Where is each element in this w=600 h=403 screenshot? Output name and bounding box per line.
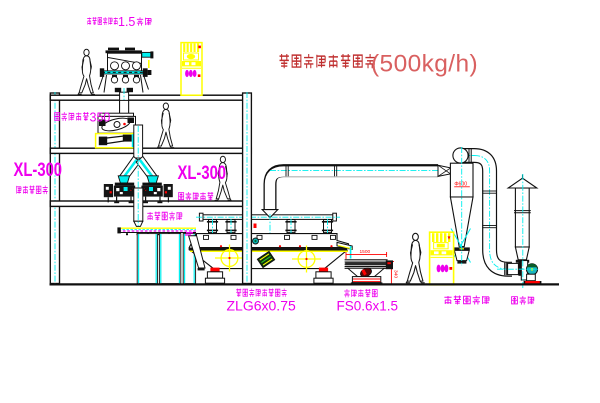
svg-text:FS0.6x1.5: FS0.6x1.5 (337, 299, 399, 314)
svg-text:340: 340 (393, 270, 399, 278)
svg-text:XL-300: XL-300 (178, 162, 227, 183)
svg-text:ZLG6x0.75: ZLG6x0.75 (227, 298, 296, 314)
svg-text:1500: 1500 (360, 249, 371, 255)
svg-text:XL-300: XL-300 (14, 159, 63, 180)
svg-text:(500kg/h): (500kg/h) (371, 51, 478, 78)
svg-text:1.5: 1.5 (118, 15, 135, 29)
svg-text:350: 350 (90, 111, 111, 125)
